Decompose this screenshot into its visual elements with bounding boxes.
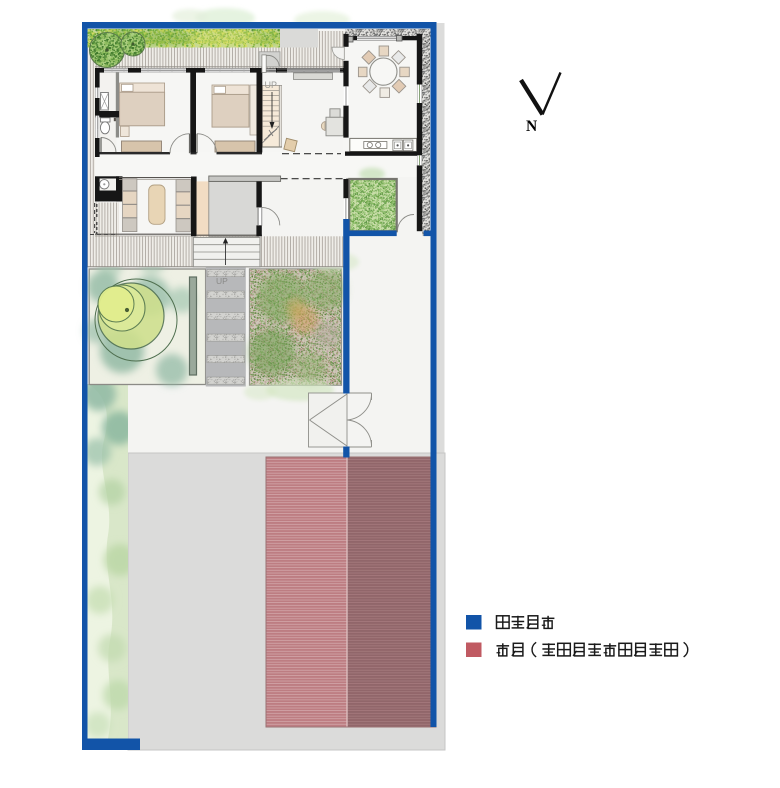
svg-text:N: N bbox=[526, 118, 537, 135]
svg-text:UP: UP bbox=[265, 80, 278, 90]
svg-text:UP: UP bbox=[216, 276, 228, 286]
